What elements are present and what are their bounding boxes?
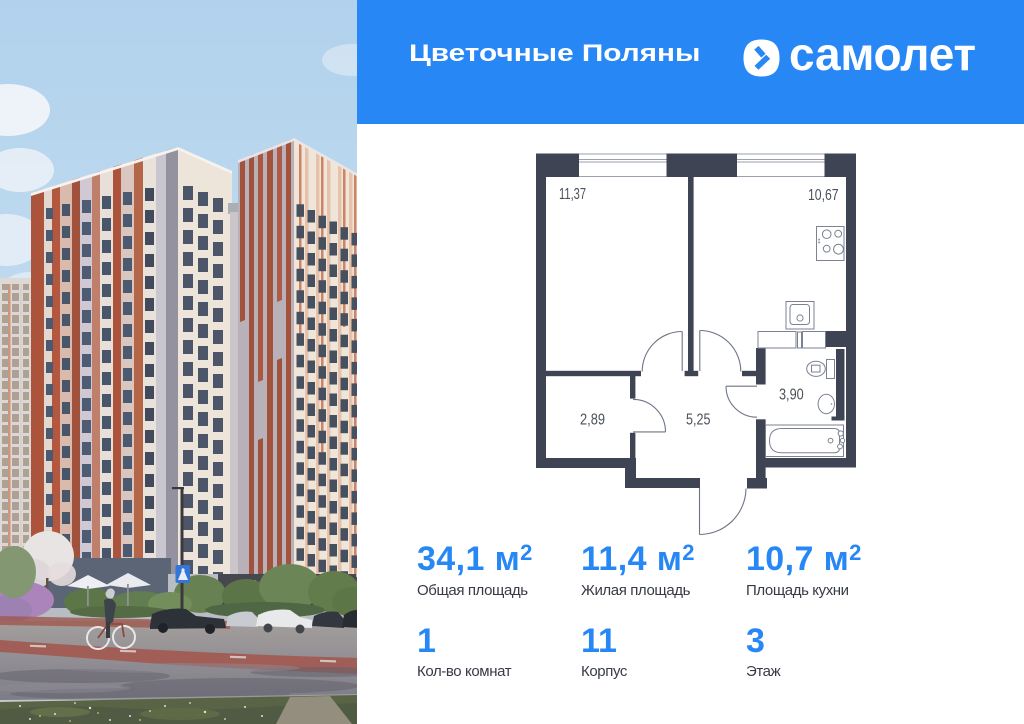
svg-text:5,25: 5,25: [686, 410, 711, 428]
svg-text:10,67: 10,67: [808, 186, 839, 204]
svg-text:3,90: 3,90: [779, 386, 804, 403]
svg-text:2,89: 2,89: [580, 411, 605, 428]
svg-text:11,37: 11,37: [559, 185, 586, 202]
